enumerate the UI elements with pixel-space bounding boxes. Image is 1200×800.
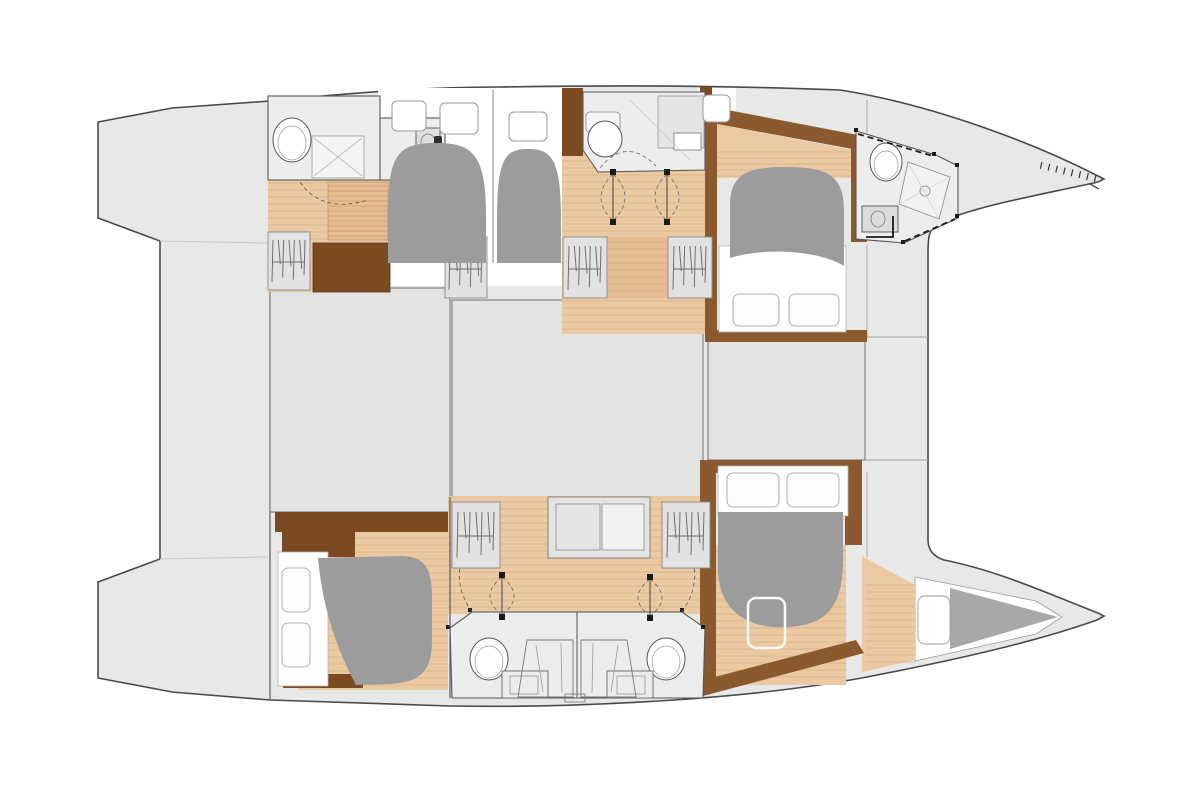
- pillow-port-fwd-2: [789, 294, 839, 326]
- door-stb-posts-2: [647, 574, 653, 580]
- sink-port-mid: [674, 133, 701, 150]
- duvet-stb-fwd: [718, 512, 843, 627]
- toilet-port-aft: [273, 118, 311, 162]
- door-stb-posts-1: [499, 614, 505, 620]
- dresser-port-aft: [313, 243, 390, 292]
- window-port-1: [392, 101, 426, 131]
- pillow-stb-aft-1: [282, 568, 310, 612]
- floor-plan: [0, 0, 1200, 800]
- door-port-posts-3: [664, 219, 670, 225]
- toilet-port-mid: [588, 121, 622, 157]
- duvet-port-fwd: [730, 167, 844, 266]
- foredeck-block: [708, 337, 865, 460]
- bow-berth-pillow: [918, 596, 950, 644]
- door-port-posts-0: [610, 169, 616, 175]
- page-background: [0, 0, 1200, 800]
- wardrobe-stb-2: [662, 502, 710, 568]
- bulkhead-brown-port-mid: [562, 88, 583, 156]
- head-fwd-posts-0: [854, 128, 858, 132]
- toilet-fwd: [870, 143, 902, 181]
- wood-niche-port: [608, 237, 667, 298]
- head-fwd-posts-4: [901, 240, 905, 244]
- pillow-stb-aft-2: [282, 623, 310, 667]
- head-fwd-posts-2: [955, 163, 959, 167]
- head-fwd-posts-1: [932, 152, 936, 156]
- pillow-stb-fwd-1: [727, 473, 779, 507]
- wardrobe-stb-1: [452, 502, 500, 568]
- bathrooms-stb-posts-3: [701, 625, 705, 629]
- door-port-posts-2: [664, 169, 670, 175]
- headboard-stb-aft: [275, 512, 448, 532]
- bed-port-mid: [497, 149, 561, 263]
- door-port-posts-1: [610, 219, 616, 225]
- bed-port-aft: [388, 143, 486, 263]
- head-fwd-posts-3: [955, 214, 959, 218]
- cockpit-deck: [270, 288, 450, 512]
- bedframe-port-fwd-left: [705, 112, 717, 338]
- window-port-2: [440, 103, 478, 134]
- window-port-3: [509, 112, 547, 141]
- door-stb-posts-0: [499, 572, 505, 578]
- pillow-port-fwd-1: [733, 294, 779, 326]
- window-port-4: [703, 95, 730, 122]
- desk-stb-top: [602, 504, 644, 550]
- door-stb-posts-3: [647, 615, 653, 621]
- pillow-stb-fwd-2: [787, 473, 839, 507]
- bow-fitting: [1090, 184, 1099, 189]
